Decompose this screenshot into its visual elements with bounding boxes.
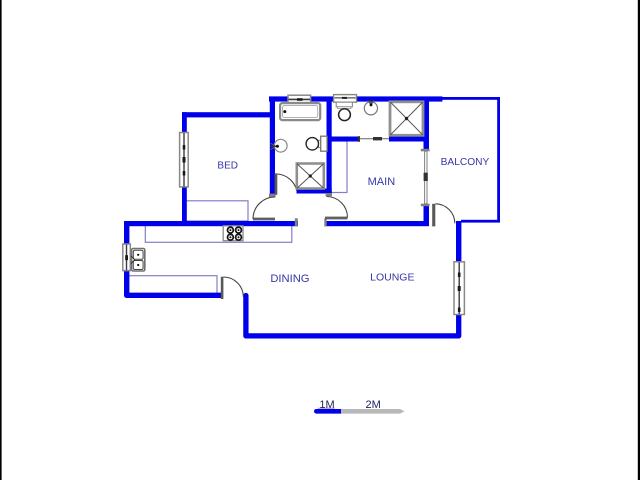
svg-text:BALCONY: BALCONY	[441, 157, 490, 168]
svg-text:BED: BED	[217, 160, 238, 171]
svg-text:1M: 1M	[319, 399, 334, 411]
svg-text:MAIN: MAIN	[368, 176, 396, 188]
svg-text:LOUNGE: LOUNGE	[370, 272, 414, 284]
svg-text:DINING: DINING	[270, 273, 309, 285]
svg-text:2M: 2M	[365, 399, 380, 411]
